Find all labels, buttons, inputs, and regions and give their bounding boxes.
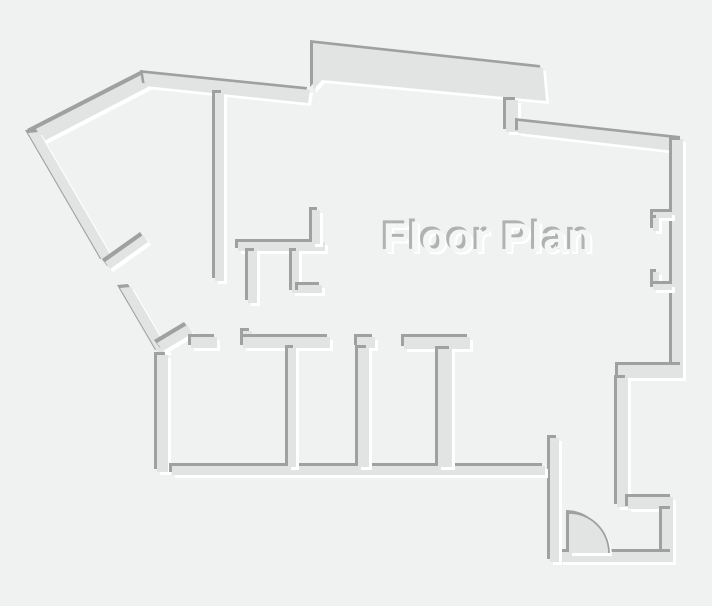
floor-plan-drawing bbox=[0, 0, 712, 606]
floor-plan-title: Floor Plan bbox=[383, 215, 593, 261]
floor-plan: Floor Plan bbox=[0, 0, 712, 606]
